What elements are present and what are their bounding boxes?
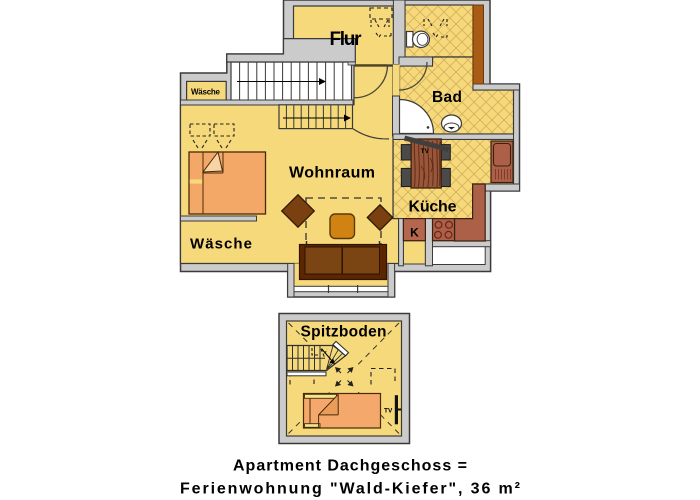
svg-text:Wäsche: Wäsche <box>191 88 221 97</box>
svg-text:Küche: Küche <box>409 199 457 216</box>
svg-text:Apartment Dachgeschoss =: Apartment Dachgeschoss = <box>233 458 467 475</box>
svg-text:Bad: Bad <box>432 89 462 106</box>
svg-text:Spitzboden: Spitzboden <box>301 324 387 341</box>
svg-text:TV: TV <box>384 408 393 415</box>
svg-text:Wohnraum: Wohnraum <box>289 165 375 182</box>
svg-text:K: K <box>410 226 419 240</box>
svg-text:Flur: Flur <box>330 29 363 50</box>
svg-text:Wäsche: Wäsche <box>190 236 252 253</box>
svg-text:Ferienwohnung "Wald-Kiefer", 3: Ferienwohnung "Wald-Kiefer", 36 m² <box>180 481 520 498</box>
svg-text:TV: TV <box>421 148 430 155</box>
